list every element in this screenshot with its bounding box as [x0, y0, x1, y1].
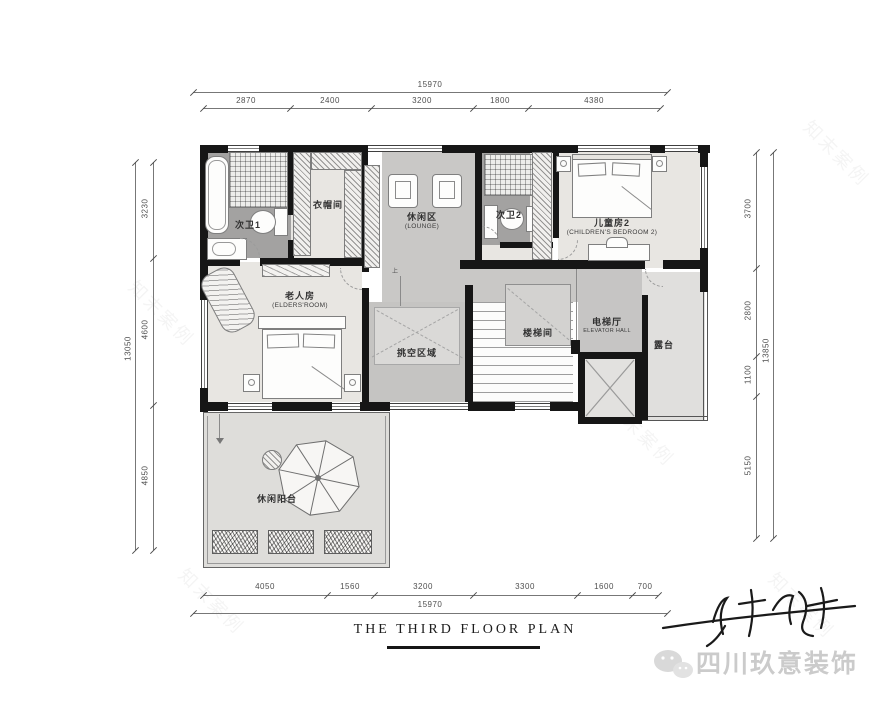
- room-label-lounge: 休闲区: [382, 210, 462, 223]
- dimension-value: 15970: [400, 80, 460, 89]
- dimension-value: 15970: [400, 600, 460, 609]
- dimension-value: 4600: [141, 300, 150, 360]
- elevator-x-icon: [585, 359, 635, 417]
- dimension-value: 4050: [235, 582, 295, 591]
- elevator-shaft-wall: [578, 352, 642, 359]
- wall-segment: [468, 402, 515, 411]
- elevator-car: [585, 359, 635, 417]
- dimension-tick: [190, 89, 197, 96]
- dimension-tick: [770, 535, 777, 542]
- armchair-cushion: [439, 181, 455, 199]
- dimension-tick: [190, 610, 197, 617]
- dimension-value: 3300: [495, 582, 555, 591]
- room-label-elders-en: (ELDERS'ROOM): [240, 302, 360, 309]
- dimension-tick: [132, 547, 139, 554]
- room-label-terrace: 露台: [624, 338, 704, 351]
- wardrobe: [311, 152, 362, 170]
- window: [228, 145, 259, 152]
- dimension-tick: [287, 105, 294, 112]
- lamp: [248, 379, 255, 386]
- dimension-value: 4380: [564, 96, 624, 105]
- window: [701, 167, 708, 248]
- room-label-closet: 衣帽间: [288, 198, 368, 211]
- room-label-elders: 老人房: [260, 289, 340, 302]
- stair-up-label: 上: [392, 266, 398, 275]
- room-label-children2: 儿童房2: [572, 216, 652, 229]
- window: [515, 403, 550, 410]
- arrow-down-icon: [216, 438, 224, 444]
- wall-segment: [642, 295, 648, 420]
- dimension-line: [203, 108, 660, 109]
- dimension-tick: [470, 592, 477, 599]
- elevator-shaft-wall: [578, 417, 642, 424]
- dimension-value: 2800: [744, 281, 753, 341]
- dimension-tick: [753, 535, 760, 542]
- dimension-tick: [629, 592, 636, 599]
- dimension-value: 2870: [216, 96, 276, 105]
- wardrobe: [532, 152, 552, 260]
- planter-box: [268, 530, 314, 554]
- window: [332, 403, 360, 410]
- dimension-line: [193, 613, 667, 614]
- dimension-tick: [664, 89, 671, 96]
- dimension-line: [203, 595, 658, 596]
- dimension-tick: [753, 149, 760, 156]
- dimension-tick: [657, 105, 664, 112]
- watermark-text: 知末案例: [798, 114, 876, 192]
- window: [578, 145, 650, 152]
- dimension-value: 5150: [744, 436, 753, 496]
- wall-segment: [272, 402, 332, 411]
- plan-title: THE THIRD FLOOR PLAN: [315, 622, 615, 638]
- watermark-text: 知末案例: [173, 562, 251, 640]
- dimension-value: 3230: [141, 179, 150, 239]
- elevator-shaft-wall: [635, 352, 642, 424]
- dimension-line: [135, 162, 136, 550]
- wall-segment: [203, 402, 228, 411]
- bed-headboard: [258, 316, 346, 329]
- wall-segment: [362, 288, 369, 402]
- lamp: [560, 160, 567, 167]
- dimension-value: 1100: [744, 345, 753, 405]
- planter-box: [212, 530, 258, 554]
- dimension-tick: [150, 547, 157, 554]
- room-label-bath2: 次卫2: [469, 208, 549, 221]
- dimension-tick: [200, 105, 207, 112]
- dimension-line: [153, 162, 154, 550]
- wall-segment: [360, 402, 390, 411]
- dimension-value: 1800: [470, 96, 530, 105]
- room-label-void: 挑空区域: [377, 346, 457, 359]
- dimension-value: 1560: [320, 582, 380, 591]
- signature: [655, 582, 865, 656]
- dimension-tick: [150, 255, 157, 262]
- dimension-tick: [753, 353, 760, 360]
- wardrobe: [344, 170, 362, 258]
- dimension-value: 3200: [393, 582, 453, 591]
- stair-guide-line: [400, 276, 401, 306]
- tv-cabinet: [262, 264, 330, 277]
- side-table: [262, 450, 282, 470]
- dimension-tick: [525, 105, 532, 112]
- dimension-tick: [150, 159, 157, 166]
- dimension-value: 2400: [300, 96, 360, 105]
- dimension-tick: [574, 592, 581, 599]
- wall-segment: [465, 285, 473, 402]
- dimension-line: [773, 152, 774, 538]
- dimension-tick: [150, 402, 157, 409]
- armchair-cushion: [395, 181, 411, 199]
- wall-segment: [663, 260, 705, 269]
- dimension-tick: [770, 149, 777, 156]
- window: [368, 145, 442, 152]
- room-label-elevator-hall-en: ELEVATOR HALL: [547, 328, 667, 334]
- dimension-tick: [753, 393, 760, 400]
- bath1-tile-area: [229, 152, 288, 208]
- wardrobe: [364, 165, 380, 268]
- bed-headboard: [572, 154, 652, 160]
- terrace-railing: [642, 416, 708, 421]
- window: [390, 403, 468, 410]
- window: [665, 145, 698, 152]
- dimension-tick: [470, 105, 477, 112]
- elevator-shaft-wall: [578, 352, 585, 424]
- room-label-elevator-hall: 电梯厅: [567, 315, 647, 328]
- pillow: [303, 333, 335, 348]
- parasol-icon: [270, 436, 366, 522]
- pillow: [578, 162, 607, 176]
- drain-line: [219, 414, 220, 440]
- wall-segment: [550, 402, 578, 411]
- dimension-tick: [368, 105, 375, 112]
- dimension-value: 3200: [392, 96, 452, 105]
- dimension-line: [756, 152, 757, 538]
- window: [228, 403, 272, 410]
- dimension-tick: [324, 592, 331, 599]
- room-label-balcony: 休闲阳台: [237, 492, 317, 505]
- sink-basin: [212, 242, 236, 256]
- room-label-lounge-en: (LOUNGE): [362, 223, 482, 230]
- dimension-tick: [371, 592, 378, 599]
- wall-segment: [700, 145, 708, 167]
- dimension-value: 13850: [762, 321, 771, 381]
- room-label-bath1: 次卫1: [208, 218, 288, 231]
- pillow: [267, 333, 299, 348]
- dimension-tick: [753, 265, 760, 272]
- window: [201, 300, 208, 388]
- dimension-value: 13050: [124, 319, 133, 379]
- dimension-tick: [132, 159, 139, 166]
- room-label-children2-en: (CHILDREN'S BEDROOM 2): [552, 229, 672, 236]
- lamp: [656, 160, 663, 167]
- floor-plan-drawing: 知末案例 知末案例 知末案例 知末案例 知末案例: [0, 0, 880, 701]
- title-underline: [387, 646, 540, 649]
- wall-segment: [700, 248, 708, 292]
- dimension-value: 3700: [744, 179, 753, 239]
- dimension-value: 4850: [141, 446, 150, 506]
- wall-segment: [460, 260, 645, 269]
- wall-segment: [650, 145, 665, 153]
- planter-box: [324, 530, 372, 554]
- dimension-line: [193, 92, 667, 93]
- lamp: [349, 379, 356, 386]
- pillow: [612, 162, 641, 176]
- desk-chair: [606, 237, 628, 248]
- terrace-railing: [703, 292, 708, 420]
